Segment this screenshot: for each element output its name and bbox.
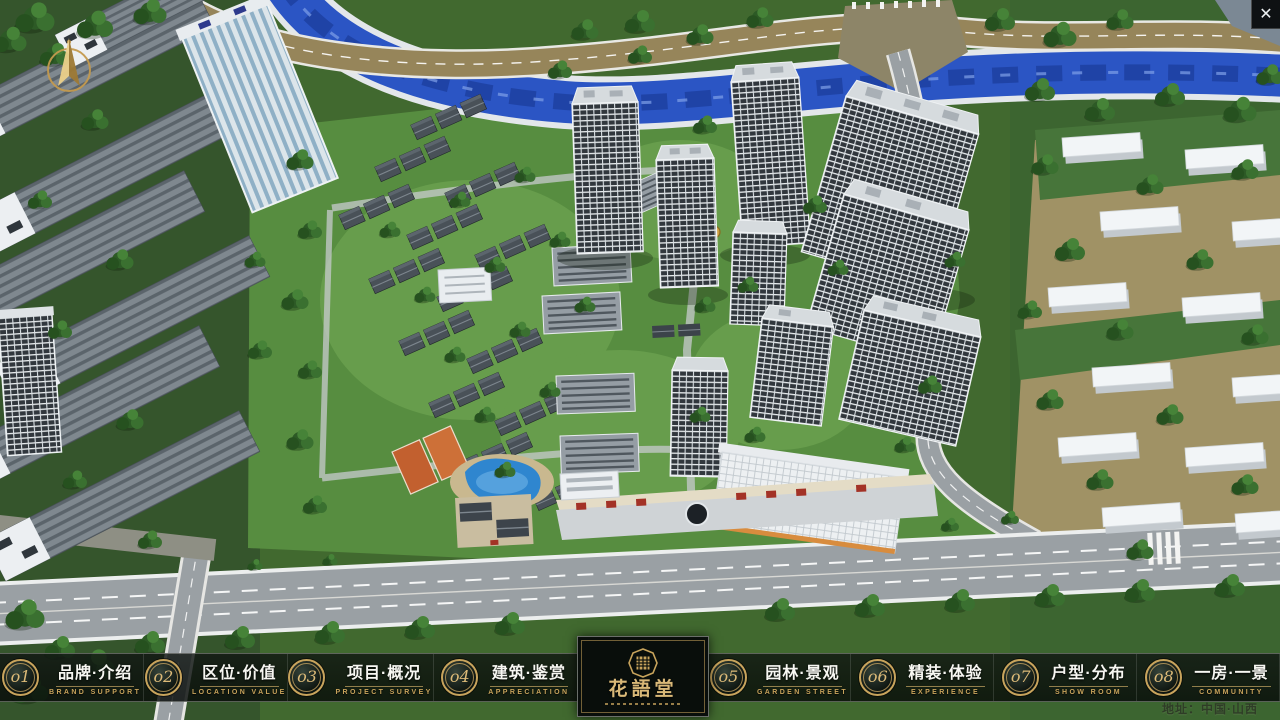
nav-item-interior-experience[interactable]: o6 精装·体验 EXPERIENCE bbox=[851, 654, 994, 701]
nav-group-left: o1 品牌·介绍 BRAND SUPPORT o2 区位·价值 LOCATION… bbox=[0, 654, 578, 701]
nav-number-badge: o8 bbox=[1145, 659, 1182, 696]
nav-number-badge: o3 bbox=[288, 659, 325, 696]
close-button[interactable]: ✕ bbox=[1251, 0, 1280, 29]
nav-label-zh: 品牌·介绍 bbox=[56, 659, 134, 687]
nav-label-zh: 户型·分布 bbox=[1049, 659, 1127, 687]
nav-item-project-overview[interactable]: o3 项目·概况 PROJECT SURVEY bbox=[288, 654, 433, 701]
nav-number-badge: o4 bbox=[441, 659, 478, 696]
nav-label-en: LOCATION VALUE bbox=[192, 689, 287, 696]
project-address: 地址：中国·山西 bbox=[1162, 700, 1258, 717]
nav-label-en: SHOW ROOM bbox=[1055, 689, 1122, 696]
nav-item-room-view[interactable]: o8 一房·一景 COMMUNITY bbox=[1137, 654, 1280, 701]
compass-icon bbox=[40, 30, 98, 102]
nav-label-en: PROJECT SURVEY bbox=[335, 689, 432, 696]
project-logo-home-button[interactable]: 花語堂 bbox=[577, 636, 709, 717]
nav-number-badge: o7 bbox=[1002, 659, 1039, 696]
project-name: 花語堂 bbox=[608, 680, 677, 699]
nav-group-right: o5 园林·景观 GARDEN STREET o6 精装·体验 EXPERIEN… bbox=[708, 654, 1280, 701]
close-icon: ✕ bbox=[1259, 4, 1272, 24]
nav-item-brand-intro[interactable]: o1 品牌·介绍 BRAND SUPPORT bbox=[0, 654, 144, 701]
nav-label-zh: 园林·景观 bbox=[763, 659, 841, 687]
nav-label-zh: 一房·一景 bbox=[1192, 659, 1270, 687]
project-name-divider bbox=[605, 703, 681, 705]
nav-label-en: BRAND SUPPORT bbox=[49, 689, 141, 696]
nav-item-floorplans[interactable]: o7 户型·分布 SHOW ROOM bbox=[994, 654, 1137, 701]
nav-label-zh: 精装·体验 bbox=[906, 659, 984, 687]
project-seal-icon bbox=[628, 648, 658, 678]
nav-item-landscape[interactable]: o5 园林·景观 GARDEN STREET bbox=[708, 654, 851, 701]
nav-label-en: APPRECIATION bbox=[488, 689, 569, 696]
nav-number-badge: o5 bbox=[710, 659, 747, 696]
nav-item-architecture[interactable]: o4 建筑·鉴赏 APPRECIATION bbox=[434, 654, 578, 701]
masterplan-render bbox=[0, 0, 1280, 720]
nav-label-zh: 区位·价值 bbox=[200, 659, 278, 687]
nav-label-zh: 建筑·鉴赏 bbox=[490, 659, 568, 687]
nav-label-en: GARDEN STREET bbox=[757, 689, 848, 696]
nav-label-en: COMMUNITY bbox=[1199, 689, 1264, 696]
nav-number-badge: o1 bbox=[2, 659, 39, 696]
nav-number-badge: o2 bbox=[145, 659, 182, 696]
nav-label-zh: 项目·概况 bbox=[345, 659, 423, 687]
nav-label-en: EXPERIENCE bbox=[911, 689, 980, 696]
nav-number-badge: o6 bbox=[859, 659, 896, 696]
sales-presentation-window: ✕ o1 品牌·介绍 BRAND SUPPORT o2 区位·价值 LOCATI… bbox=[0, 0, 1280, 720]
nav-item-location-value[interactable]: o2 区位·价值 LOCATION VALUE bbox=[144, 654, 288, 701]
